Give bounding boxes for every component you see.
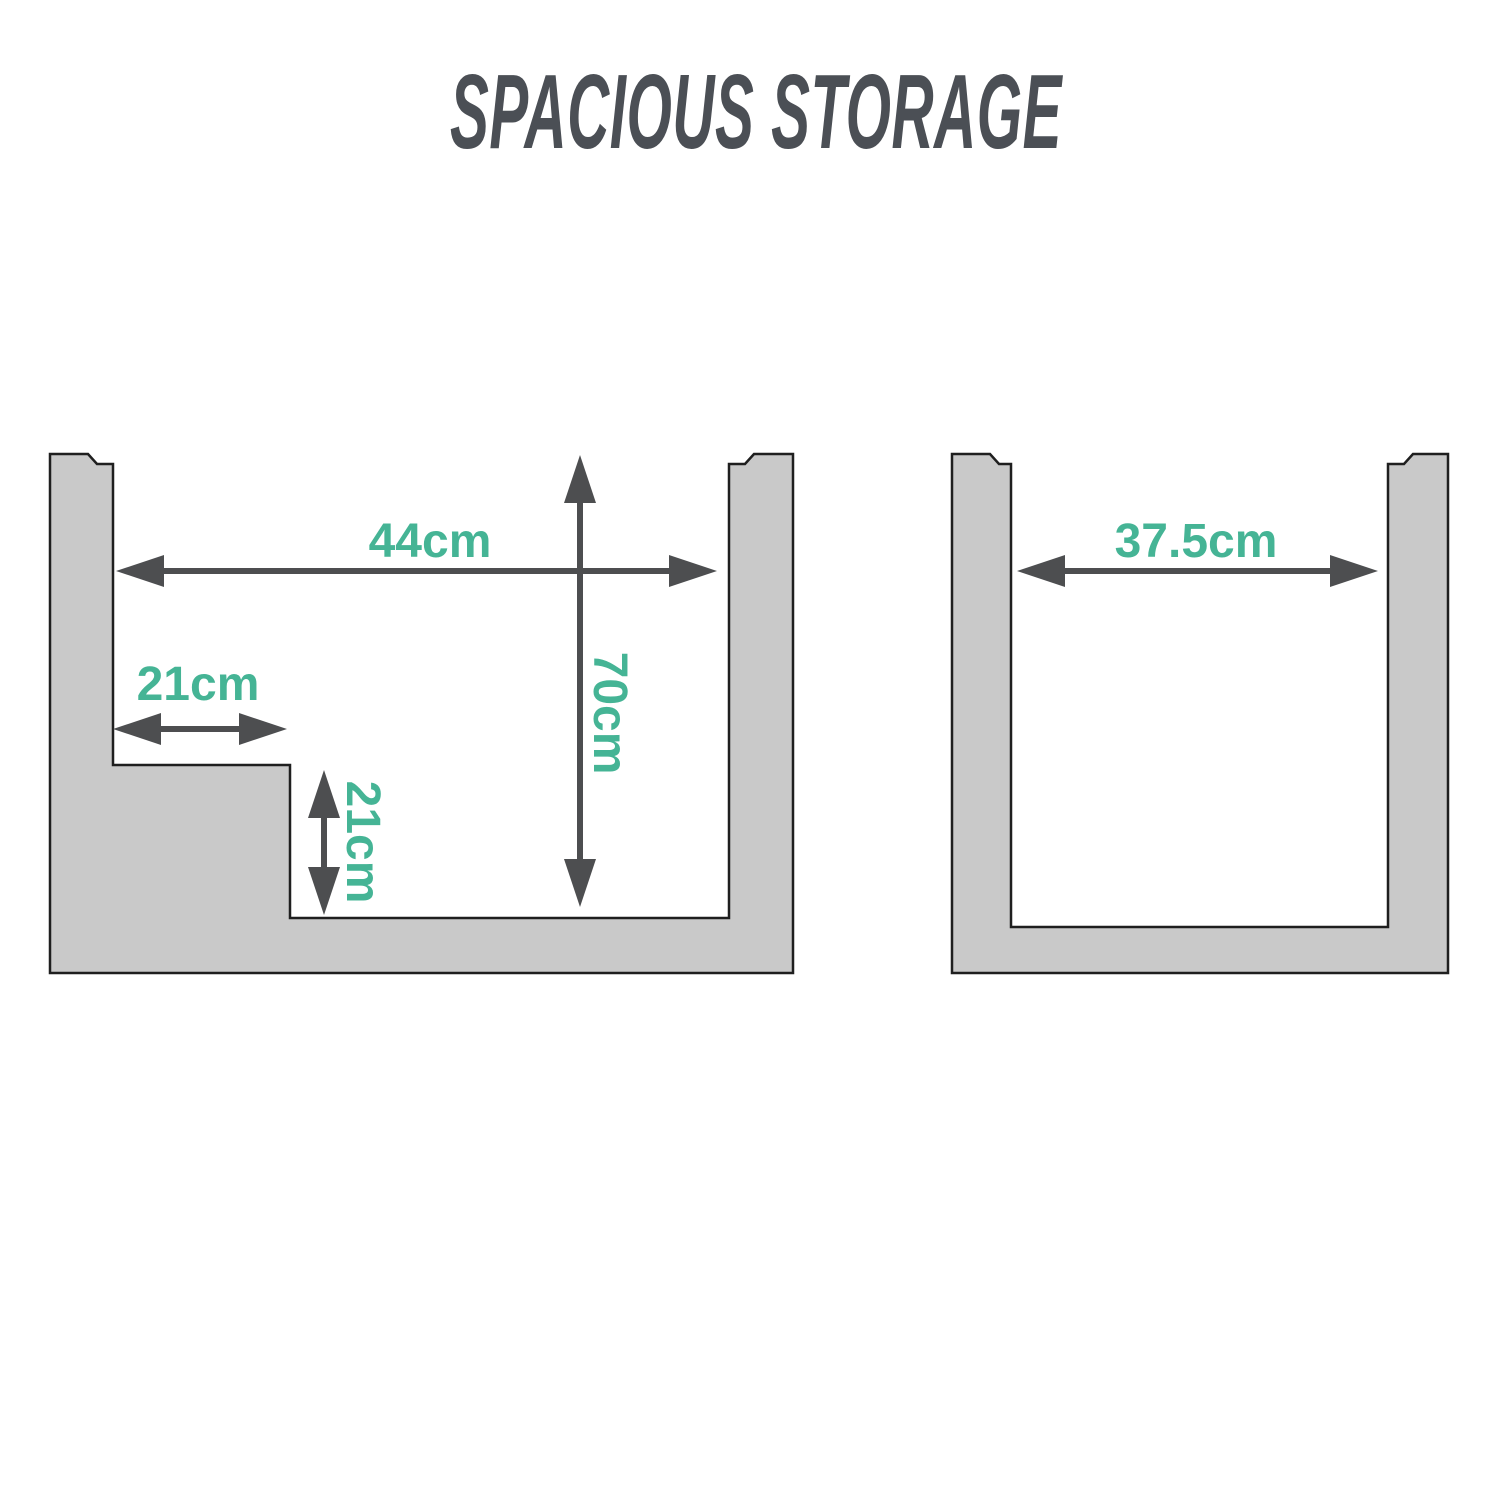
arrowhead-left-icon [113, 713, 161, 745]
left-unit-step-width-label: 21cm [137, 658, 260, 711]
spacious-storage-diagram: SPACIOUS STORAGE 44cm 70cm 21cm [0, 0, 1500, 1500]
diagram-svg: SPACIOUS STORAGE 44cm 70cm 21cm [0, 0, 1500, 1500]
left-unit-step-width-arrow [113, 713, 287, 745]
arrowhead-right-icon [1330, 555, 1378, 587]
arrowhead-up-icon [308, 770, 340, 818]
arrowhead-right-icon [669, 555, 717, 587]
left-unit-width-label: 44cm [369, 515, 492, 568]
left-unit-step-height-arrow [308, 770, 340, 915]
left-unit-step-height-label: 21cm [336, 781, 389, 904]
arrowhead-left-icon [116, 555, 164, 587]
arrowhead-up-icon [564, 455, 596, 503]
arrowhead-down-icon [308, 867, 340, 915]
arrowhead-down-icon [564, 859, 596, 907]
arrowhead-left-icon [1017, 555, 1065, 587]
right-unit-width-label: 37.5cm [1115, 515, 1278, 568]
page-title: SPACIOUS STORAGE [450, 53, 1063, 171]
arrowhead-right-icon [239, 713, 287, 745]
left-unit-depth-label: 70cm [583, 652, 636, 775]
